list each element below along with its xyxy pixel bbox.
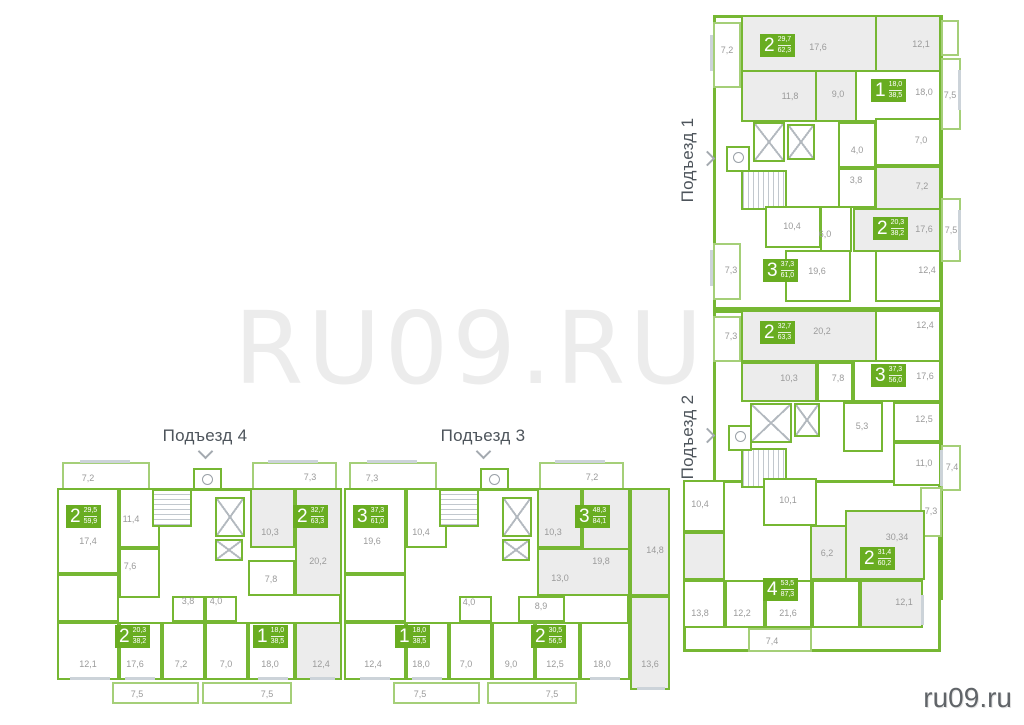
- room-area-label: 12,5: [915, 414, 933, 424]
- room-area-label: 17,6: [916, 371, 934, 381]
- apartment-rooms-count: 2: [535, 627, 546, 646]
- apartment-total-area: 38,2: [891, 230, 905, 238]
- apartment-living-area: 53,5: [781, 580, 795, 590]
- balcony: [112, 682, 199, 704]
- balcony: [487, 682, 577, 704]
- room-area-label: 10,3: [780, 373, 798, 383]
- wheelchair-icon: [489, 474, 500, 485]
- room-area-label: 12,1: [895, 597, 913, 607]
- entry-vestibule: [193, 468, 222, 490]
- room: [630, 488, 670, 596]
- apartment-rooms-count: 3: [875, 366, 886, 385]
- balcony: [748, 628, 812, 652]
- apartment-rooms-count: 2: [764, 323, 775, 342]
- apartment-living-area: 37,3: [371, 507, 385, 517]
- room: [344, 574, 406, 622]
- window-mark: [637, 687, 665, 690]
- room: [344, 488, 406, 574]
- apartment-badge[interactable]: 2 32,763,3: [293, 505, 328, 528]
- room-area-label: 18,0: [261, 659, 279, 669]
- room-area-label: 11,0: [916, 458, 933, 468]
- apartment-badge[interactable]: 2 31,460,2: [860, 547, 895, 570]
- apartment-living-area: 18,0: [271, 627, 285, 637]
- apartment-total-area: 63,3: [311, 518, 325, 526]
- apartment-rooms-count: 2: [764, 36, 775, 55]
- room-area-label: 7,2: [721, 45, 734, 55]
- wheelchair-icon: [735, 431, 746, 442]
- window-mark: [921, 595, 924, 625]
- room-area-label: 4,0: [210, 596, 223, 606]
- room: [860, 580, 923, 628]
- room: [683, 580, 725, 628]
- room-area-label: 11,8: [782, 91, 799, 101]
- room-area-label: 12,1: [79, 659, 97, 669]
- room-area-label: 6,2: [821, 548, 834, 558]
- apartment-total-area: 59,9: [84, 518, 98, 526]
- room: [875, 250, 941, 302]
- apartment-total-area: 38,5: [271, 638, 285, 646]
- room: [683, 532, 725, 580]
- apartment-rooms-count: 2: [864, 549, 875, 568]
- apartment-total-area: 87,3: [781, 591, 795, 599]
- apartment-rooms-count: 2: [297, 507, 308, 526]
- room: [838, 168, 876, 208]
- apartment-badge[interactable]: 4 53,587,3: [763, 578, 798, 601]
- balcony: [62, 462, 150, 490]
- entrance-title: Подъезд 2: [678, 395, 698, 480]
- apartment-badge[interactable]: 3 48,384,1: [575, 505, 610, 528]
- apartment-living-area: 18,0: [413, 627, 427, 637]
- balcony: [349, 462, 437, 490]
- room: [741, 70, 817, 122]
- room-area-label: 13,0: [551, 573, 569, 583]
- apartment-rooms-count: 1: [257, 627, 268, 646]
- room-area-label: 9,0: [832, 89, 845, 99]
- apartment-living-area: 37,3: [889, 366, 903, 376]
- room-area-label: 17,4: [79, 536, 97, 546]
- room-area-label: 19,6: [808, 266, 826, 276]
- apartment-badge[interactable]: 3 37,356,0: [871, 364, 906, 387]
- apartment-total-area: 56,0: [889, 377, 903, 385]
- room-area-label: 5,3: [856, 421, 869, 431]
- apartment-rooms-count: 2: [877, 219, 888, 238]
- apartment-rooms-count: 4: [767, 580, 778, 599]
- room-area-label: 19,6: [363, 536, 381, 546]
- room: [537, 548, 630, 596]
- wheelchair-icon: [202, 474, 213, 485]
- room-area-label: 10,4: [691, 499, 709, 509]
- room-area-label: 10,3: [544, 527, 562, 537]
- entry-vestibule: [726, 146, 750, 172]
- apartment-total-area: 63,3: [778, 334, 792, 342]
- window-mark: [367, 460, 417, 463]
- room: [875, 118, 941, 166]
- window-mark: [258, 677, 288, 680]
- room: [725, 580, 765, 628]
- apartment-living-area: 29,7: [778, 36, 792, 46]
- elevator-shaft: [215, 539, 243, 561]
- room: [492, 622, 535, 680]
- apartment-living-area: 18,0: [889, 81, 903, 91]
- room: [119, 548, 160, 598]
- room-area-label: 4,0: [463, 597, 476, 607]
- room-area-label: 21,6: [779, 608, 797, 618]
- apartment-total-area: 61,0: [781, 272, 795, 280]
- room: [875, 15, 941, 72]
- staircase: [152, 489, 192, 527]
- room-area-label: 7,2: [586, 472, 599, 482]
- room: [580, 622, 630, 680]
- room: [250, 488, 295, 548]
- room-area-label: 7,5: [414, 689, 427, 699]
- room-area-label: 18,0: [412, 659, 430, 669]
- room-area-label: 11,4: [123, 514, 140, 524]
- apartment-living-area: 48,3: [593, 507, 607, 517]
- apartment-living-area: 32,7: [778, 323, 792, 333]
- apartment-rooms-count: 1: [399, 627, 410, 646]
- apartment-badge[interactable]: 2 32,763,3: [760, 321, 795, 344]
- room: [57, 574, 119, 622]
- room-area-label: 7,0: [915, 135, 928, 145]
- room-area-label: 3,8: [182, 596, 195, 606]
- window-mark: [70, 677, 110, 680]
- room-area-label: 7,0: [220, 659, 233, 669]
- apartment-living-area: 31,4: [878, 549, 892, 559]
- apartment-living-area: 20,3: [133, 627, 147, 637]
- staircase: [439, 489, 479, 527]
- apartment-total-area: 62,3: [778, 47, 792, 55]
- window-mark: [310, 677, 335, 680]
- apartment-rooms-count: 3: [357, 507, 368, 526]
- window-mark: [125, 677, 155, 680]
- room-area-label: 19,8: [592, 556, 610, 566]
- elevator-shaft: [750, 403, 792, 443]
- room-area-label: 7,5: [546, 689, 559, 699]
- apartment-living-area: 30,5: [549, 627, 563, 637]
- room-area-label: 14,8: [646, 545, 664, 555]
- apartment-rooms-count: 2: [70, 507, 81, 526]
- room: [741, 362, 817, 402]
- window-mark: [710, 35, 713, 71]
- window-mark: [590, 677, 620, 680]
- balcony: [713, 22, 741, 88]
- elevator-shaft: [787, 124, 815, 160]
- room: [812, 580, 860, 628]
- apartment-total-area: 38,5: [413, 638, 427, 646]
- apartment-total-area: 56,5: [549, 638, 563, 646]
- apartment-rooms-count: 2: [119, 627, 130, 646]
- room-area-label: 7,3: [925, 506, 938, 516]
- room-area-label: 7,3: [366, 473, 379, 483]
- room: [57, 622, 119, 680]
- entry-vestibule: [480, 468, 509, 490]
- room-area-label: 7,2: [916, 181, 929, 191]
- balcony: [393, 682, 480, 704]
- apartment-living-area: 37,3: [781, 261, 795, 271]
- room: [162, 622, 205, 680]
- apartment-rooms-count: 1: [875, 81, 886, 100]
- room-area-label: 7,4: [766, 636, 779, 646]
- room-area-label: 12,4: [364, 659, 382, 669]
- apartment-living-area: 20,3: [891, 219, 905, 229]
- site-logo: ru09.ru: [923, 682, 1012, 714]
- apartment-badge[interactable]: 2 20,338,2: [873, 217, 908, 240]
- room-area-label: 7,8: [832, 373, 845, 383]
- room: [205, 622, 248, 680]
- room: [630, 596, 670, 690]
- balcony: [202, 682, 292, 704]
- apartment-living-area: 29,5: [84, 507, 98, 517]
- apartment-total-area: 38,2: [133, 638, 147, 646]
- apartment-badge[interactable]: 2 29,762,3: [760, 34, 795, 57]
- staircase: [741, 170, 787, 210]
- room-area-label: 7,0: [460, 659, 473, 669]
- apartment-badge[interactable]: 1 18,038,5: [253, 625, 288, 648]
- apartment-badge[interactable]: 3 37,361,0: [353, 505, 388, 528]
- room-area-label: 7,3: [725, 331, 738, 341]
- entrance-direction-icon: [198, 444, 214, 460]
- apartment-badge[interactable]: 1 18,038,5: [395, 625, 430, 648]
- room-area-label: 3,8: [850, 175, 863, 185]
- entry-vestibule: [728, 425, 752, 451]
- room-area-label: 18,0: [593, 659, 611, 669]
- apartment-total-area: 61,0: [371, 518, 385, 526]
- apartment-badge[interactable]: 2 20,338,2: [115, 625, 150, 648]
- room-area-label: 10,1: [779, 495, 797, 505]
- window-mark: [710, 250, 713, 286]
- room-area-label: 12,2: [733, 608, 751, 618]
- window-mark: [958, 70, 961, 110]
- elevator-shaft: [502, 497, 532, 537]
- room-area-label: 7,3: [725, 265, 738, 275]
- room-area-label: 7,2: [82, 473, 95, 483]
- room: [875, 310, 941, 362]
- room: [295, 622, 342, 680]
- room-area-label: 10,4: [783, 221, 801, 231]
- balcony: [539, 462, 624, 490]
- room-area-label: 7,2: [175, 659, 188, 669]
- apartment-badge[interactable]: 2 29,559,9: [66, 505, 101, 528]
- elevator-shaft: [753, 122, 785, 162]
- room-area-label: 12,4: [918, 265, 936, 275]
- room-area-label: 7,8: [265, 574, 278, 584]
- window-mark: [555, 460, 605, 463]
- window-mark: [958, 210, 961, 250]
- room-area-label: 13,6: [641, 659, 659, 669]
- room-area-label: 10,4: [412, 527, 430, 537]
- room-area-label: 6,0: [819, 229, 832, 239]
- apartment-badge[interactable]: 3 37,361,0: [763, 259, 798, 282]
- room-area-label: 7,4: [946, 462, 959, 472]
- room-area-label: 12,5: [546, 659, 564, 669]
- balcony: [252, 462, 337, 490]
- room-area-label: 18,0: [915, 87, 933, 97]
- entrance-title: Подъезд 1: [678, 118, 698, 203]
- room-area-label: 13,8: [691, 608, 709, 618]
- window-mark: [940, 450, 943, 486]
- apartment-badge[interactable]: 2 30,556,5: [531, 625, 566, 648]
- room-area-label: 17,6: [126, 659, 144, 669]
- elevator-shaft: [215, 497, 245, 537]
- room-area-label: 7,5: [131, 689, 144, 699]
- apartment-rooms-count: 3: [767, 261, 778, 280]
- room-area-label: 20,2: [309, 556, 327, 566]
- apartment-rooms-count: 3: [579, 507, 590, 526]
- elevator-shaft: [502, 539, 530, 561]
- room-area-label: 10,3: [261, 527, 279, 537]
- window-mark: [80, 460, 130, 463]
- room-area-label: 12,4: [312, 659, 330, 669]
- room-area-label: 12,1: [912, 39, 930, 49]
- entrance-direction-icon: [476, 444, 492, 460]
- room-area-label: 17,6: [915, 224, 933, 234]
- room-area-label: 17,6: [809, 42, 827, 52]
- apartment-total-area: 84,1: [593, 518, 607, 526]
- window-mark: [268, 460, 318, 463]
- wheelchair-icon: [733, 152, 744, 163]
- window-mark: [412, 677, 442, 680]
- room-area-label: 20,2: [813, 326, 831, 336]
- window-mark: [360, 677, 390, 680]
- apartment-badge[interactable]: 1 18,038,5: [871, 79, 906, 102]
- apartment-total-area: 60,2: [878, 560, 892, 568]
- room: [875, 166, 941, 210]
- room: [57, 488, 119, 574]
- apartment-total-area: 38,5: [889, 92, 903, 100]
- room-area-label: 7,5: [944, 90, 957, 100]
- floor-plan: RU09.RU 2 29,762,3 1 18,038,5: [0, 0, 1024, 725]
- room-area-label: 7,5: [945, 225, 958, 235]
- watermark: RU09.RU: [234, 290, 706, 407]
- room-area-label: 7,3: [304, 472, 317, 482]
- room: [449, 622, 492, 680]
- room-area-label: 4,0: [851, 145, 864, 155]
- room-area-label: 7,5: [261, 689, 274, 699]
- balcony: [941, 20, 959, 56]
- room-area-label: 9,0: [505, 659, 518, 669]
- room-area-label: 8,9: [535, 601, 548, 611]
- room-area-label: 30,34: [886, 532, 909, 542]
- room-area-label: 12,4: [916, 320, 934, 330]
- elevator-shaft: [794, 403, 820, 437]
- room-area-label: 7,6: [124, 561, 137, 571]
- apartment-living-area: 32,7: [311, 507, 325, 517]
